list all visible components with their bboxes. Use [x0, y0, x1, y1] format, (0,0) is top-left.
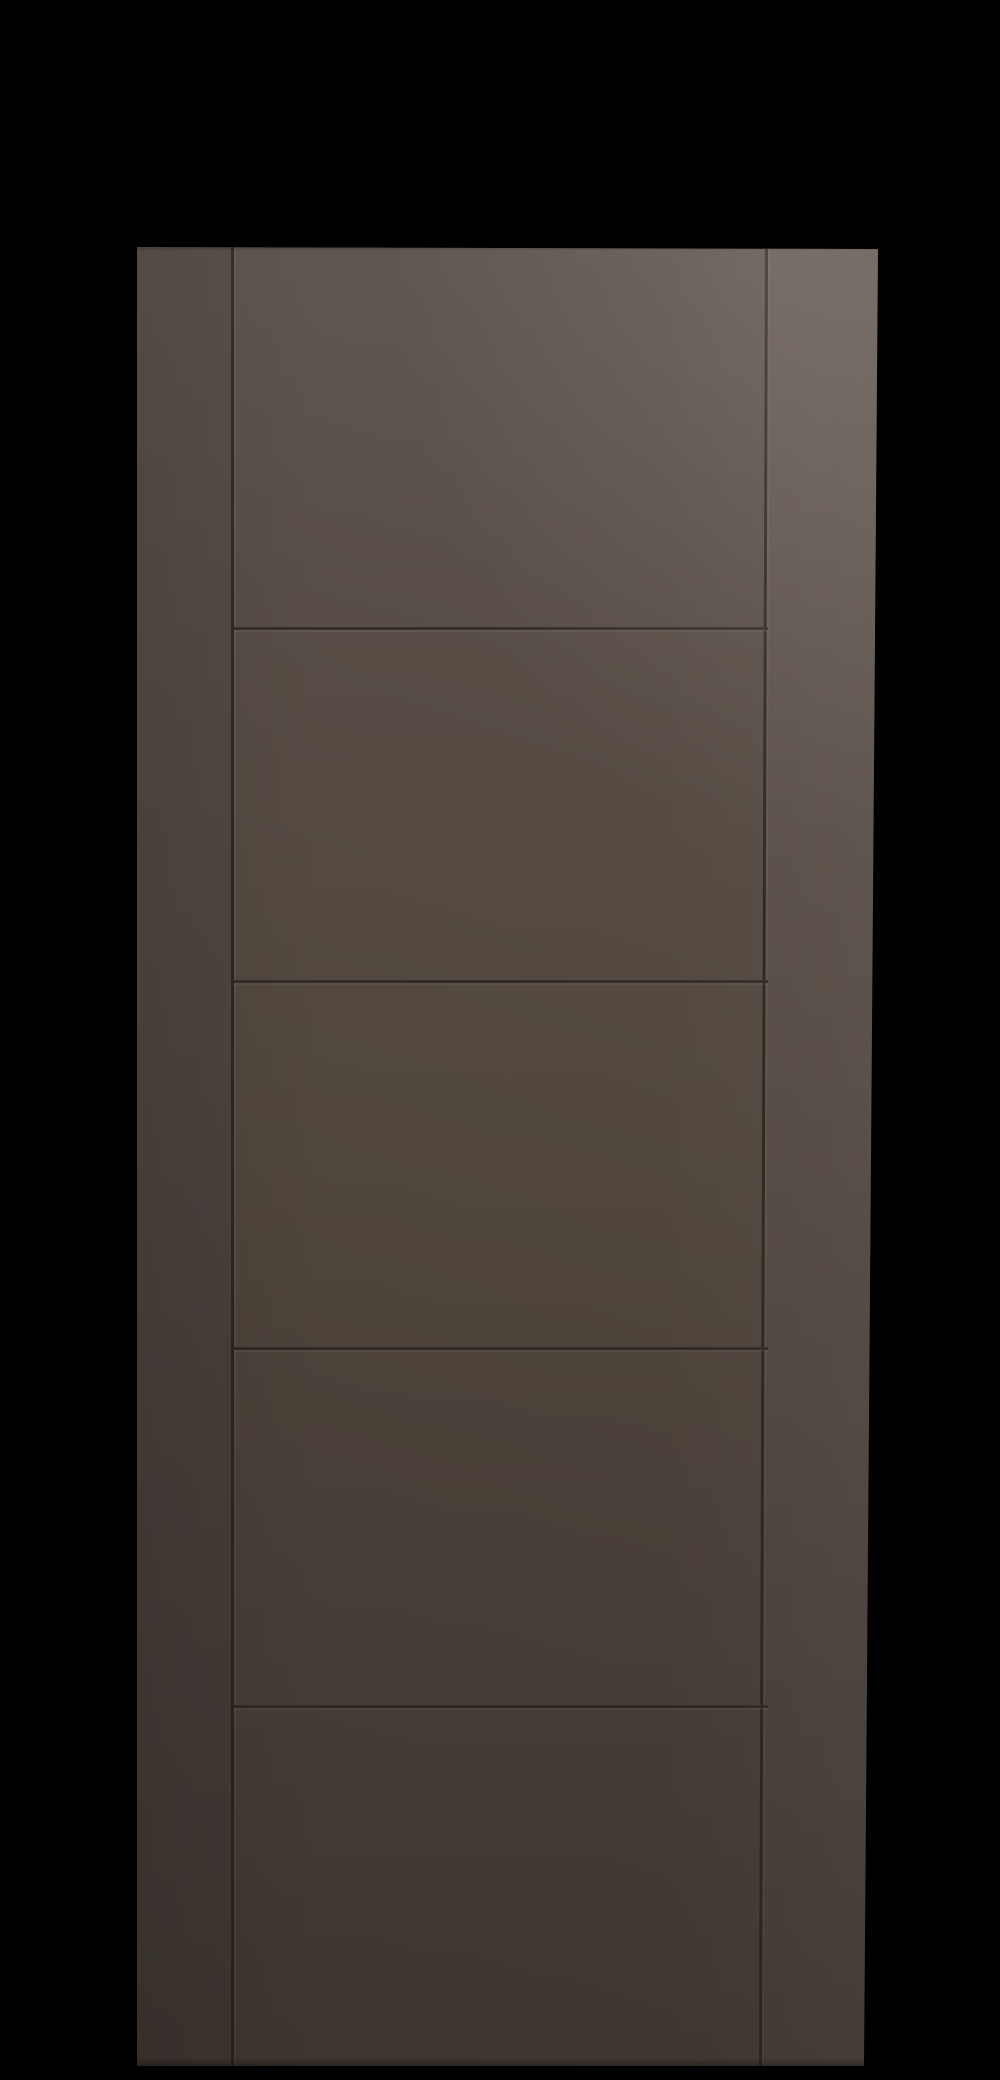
door-panel-2 [234, 630, 768, 980]
studio-background [0, 0, 1000, 2080]
door-panel-4 [234, 1350, 768, 1705]
horizontal-groove-1 [234, 627, 768, 630]
horizontal-groove-3 [234, 1347, 768, 1350]
door-top-edge-shadow [137, 247, 878, 250]
door-left-stile [137, 247, 231, 2066]
door-panel-1 [234, 247, 768, 627]
door-panel-3 [234, 983, 768, 1347]
horizontal-groove-4 [234, 1705, 768, 1708]
door-bottom-edge-shadow [137, 2058, 878, 2066]
vertical-groove-left [231, 247, 234, 2066]
door-panel-5 [234, 1708, 768, 2066]
horizontal-groove-2 [234, 980, 768, 983]
door-slab [137, 247, 878, 2066]
door-right-stile [765, 247, 878, 2066]
